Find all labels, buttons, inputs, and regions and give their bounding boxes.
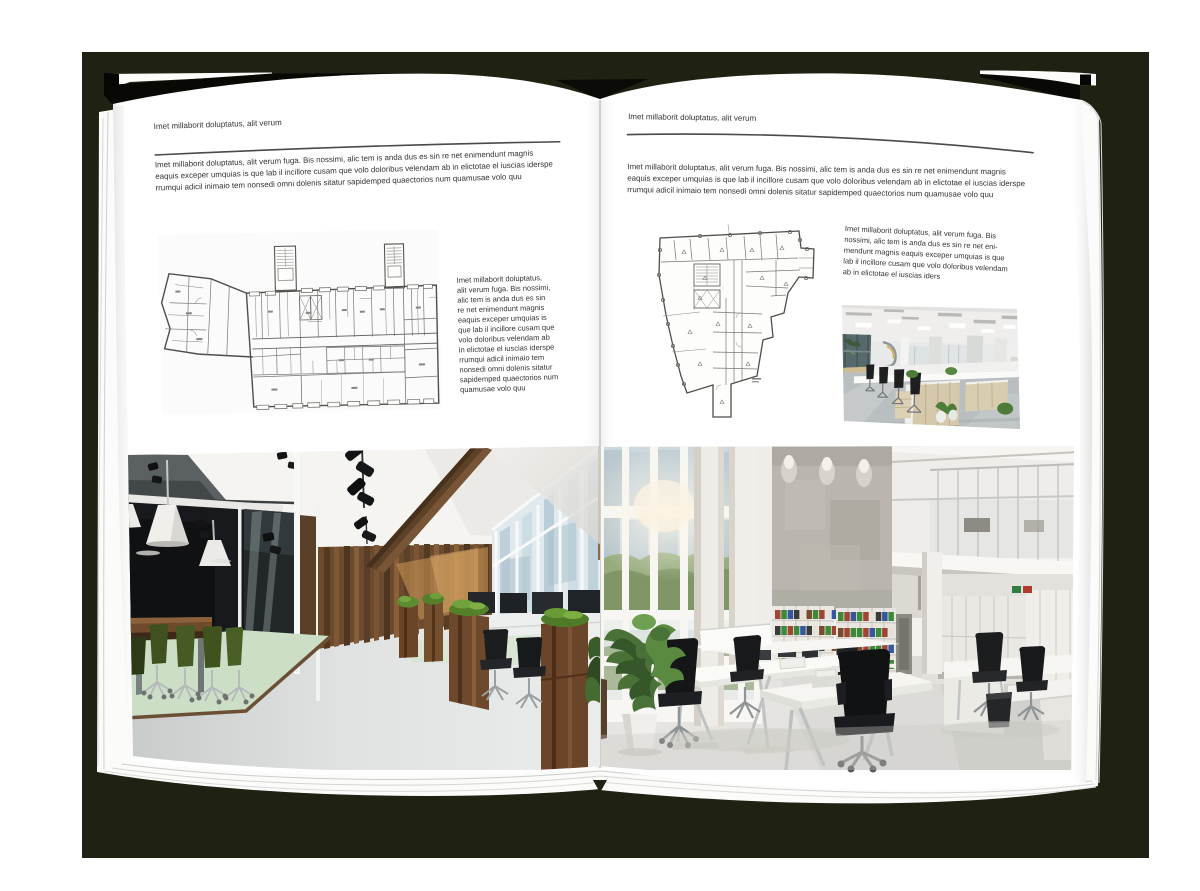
svg-text:Imet millaborit doluptatus, al: Imet millaborit doluptatus, alit verum [628, 112, 756, 123]
